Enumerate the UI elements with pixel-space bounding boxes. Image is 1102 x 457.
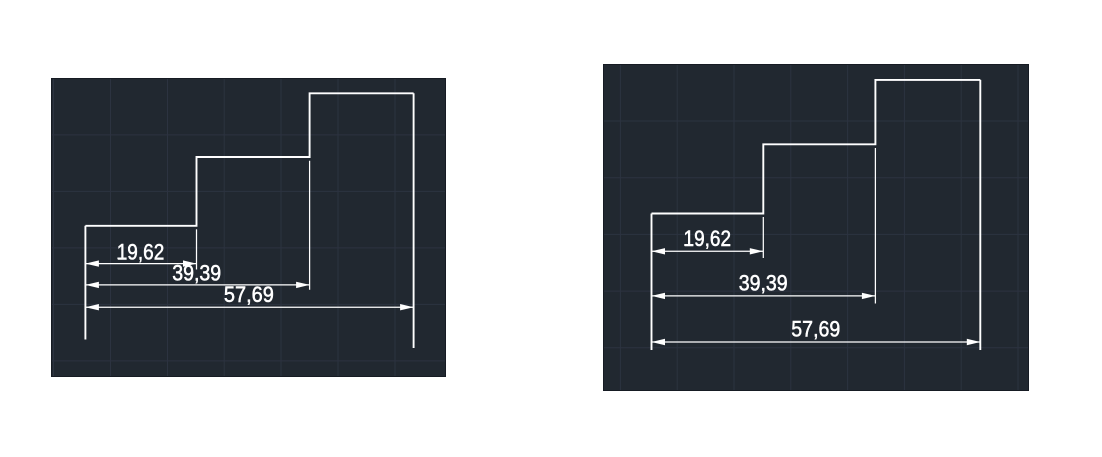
- svg-text:57,69: 57,69: [224, 282, 274, 307]
- svg-text:19,62: 19,62: [117, 239, 165, 264]
- svg-text:39,39: 39,39: [172, 261, 221, 286]
- svg-text:19,62: 19,62: [684, 226, 732, 251]
- svg-text:39,39: 39,39: [739, 271, 788, 296]
- svg-text:57,69: 57,69: [791, 317, 840, 342]
